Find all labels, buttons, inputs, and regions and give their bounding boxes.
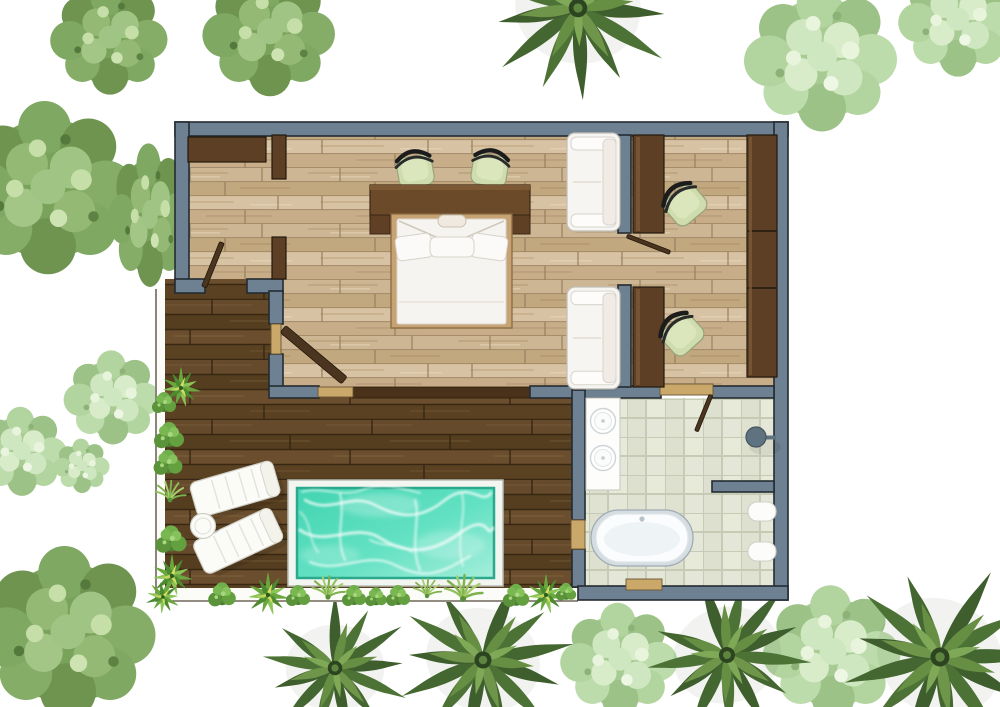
tub-faucet <box>639 516 644 521</box>
light-tree <box>744 0 897 132</box>
wall-hung-toilet <box>748 502 776 521</box>
wall-deck-top <box>269 386 319 398</box>
swimming-pool <box>288 480 503 586</box>
building <box>142 122 788 619</box>
nook-partition-upper <box>272 135 286 179</box>
palm-tree <box>262 593 408 707</box>
bathtub <box>591 510 693 566</box>
bolster-pillow <box>438 215 466 227</box>
sink-drain <box>601 456 605 460</box>
wall-bath-bottom <box>578 586 788 600</box>
plan-svg <box>0 0 1000 707</box>
tub-basin <box>604 522 680 556</box>
wall-bath-top-right <box>712 386 774 398</box>
floor-plan-illustration <box>0 0 1000 707</box>
wall-entry-elbow <box>175 279 205 293</box>
wall-top <box>175 122 788 136</box>
round-tree <box>0 101 136 274</box>
palm-tree <box>473 0 684 112</box>
round-tree <box>202 0 335 96</box>
light-tree <box>560 603 677 707</box>
shower-head-icon <box>746 427 766 447</box>
threshold <box>660 384 713 395</box>
deck-sill <box>352 387 530 398</box>
console-wing-left <box>370 215 390 234</box>
round-tree <box>0 546 156 707</box>
pillow-left <box>395 233 434 262</box>
wall-hung-bidet <box>748 542 776 561</box>
wall-deck-bath-lower <box>572 549 585 587</box>
wall-left <box>175 122 189 292</box>
light-tree <box>0 407 67 496</box>
round-tree <box>50 0 167 95</box>
sink-drain <box>601 419 605 423</box>
nook-partition-lower <box>272 237 286 279</box>
console-highlight <box>370 185 530 190</box>
light-tree <box>898 0 1000 77</box>
wall-corridor-upper <box>269 291 283 324</box>
sofa-bench <box>567 287 621 391</box>
vanity-with-sinks <box>586 398 620 490</box>
wall-deck-bath-upper <box>572 390 585 520</box>
double-bed <box>391 214 512 328</box>
threshold <box>571 520 585 549</box>
wall-closet <box>188 137 266 162</box>
wardrobe-counter <box>747 135 777 377</box>
console-wing-right <box>510 215 530 234</box>
light-tree <box>64 350 161 444</box>
threshold <box>271 324 281 354</box>
pillow-center <box>430 237 474 257</box>
wardrobe-highlight <box>749 137 752 375</box>
wall-shower-stub <box>712 481 774 492</box>
threshold <box>626 579 662 590</box>
sofa-bench <box>567 133 621 233</box>
desk-highlight <box>636 137 640 231</box>
threshold <box>318 387 353 397</box>
wall-corridor-lower <box>269 354 283 388</box>
pillow-right <box>470 233 509 262</box>
desk-highlight <box>636 289 640 385</box>
